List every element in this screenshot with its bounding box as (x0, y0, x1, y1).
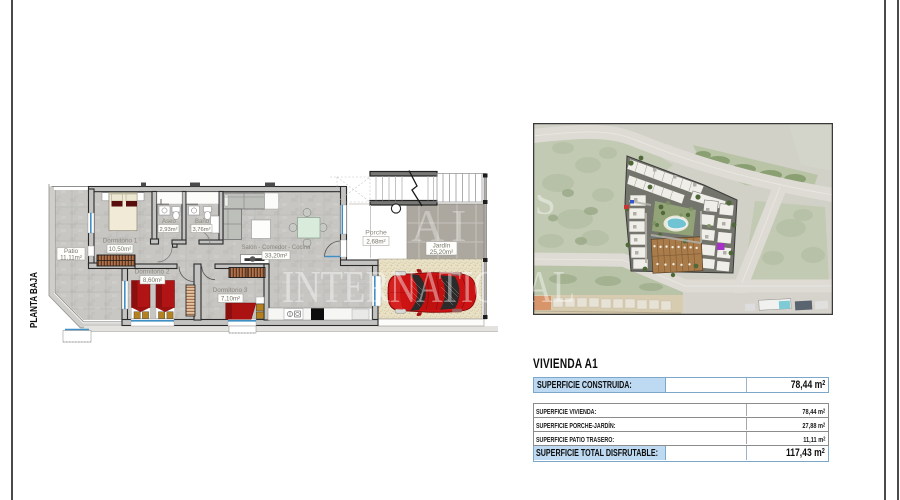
svg-text:11,11m²: 11,11m² (60, 255, 82, 262)
svg-text:33,20m²: 33,20m² (265, 253, 288, 260)
svg-text:8,60m²: 8,60m² (143, 277, 162, 284)
svg-text:Salón - Comedor - Cocina: Salón - Comedor - Cocina (242, 244, 311, 251)
svg-text:7,10m²: 7,10m² (221, 296, 240, 303)
svg-text:2,93m²: 2,93m² (159, 227, 177, 233)
svg-text:PLANTA BAJA: PLANTA BAJA (28, 272, 40, 328)
svg-text:Dormitorio 2: Dormitorio 2 (135, 269, 170, 276)
svg-text:Porche: Porche (365, 230, 387, 237)
svg-text:2,68m²: 2,68m² (366, 239, 385, 246)
svg-text:25,20m²: 25,20m² (430, 249, 453, 256)
svg-text:3,76m²: 3,76m² (192, 227, 210, 233)
svg-text:Dormitorio 3: Dormitorio 3 (213, 287, 248, 294)
svg-text:Aseo: Aseo (162, 219, 176, 225)
svg-text:10,50m²: 10,50m² (109, 246, 132, 253)
svg-text:Baño: Baño (195, 219, 210, 225)
svg-text:Dormitorio 1: Dormitorio 1 (103, 238, 138, 245)
